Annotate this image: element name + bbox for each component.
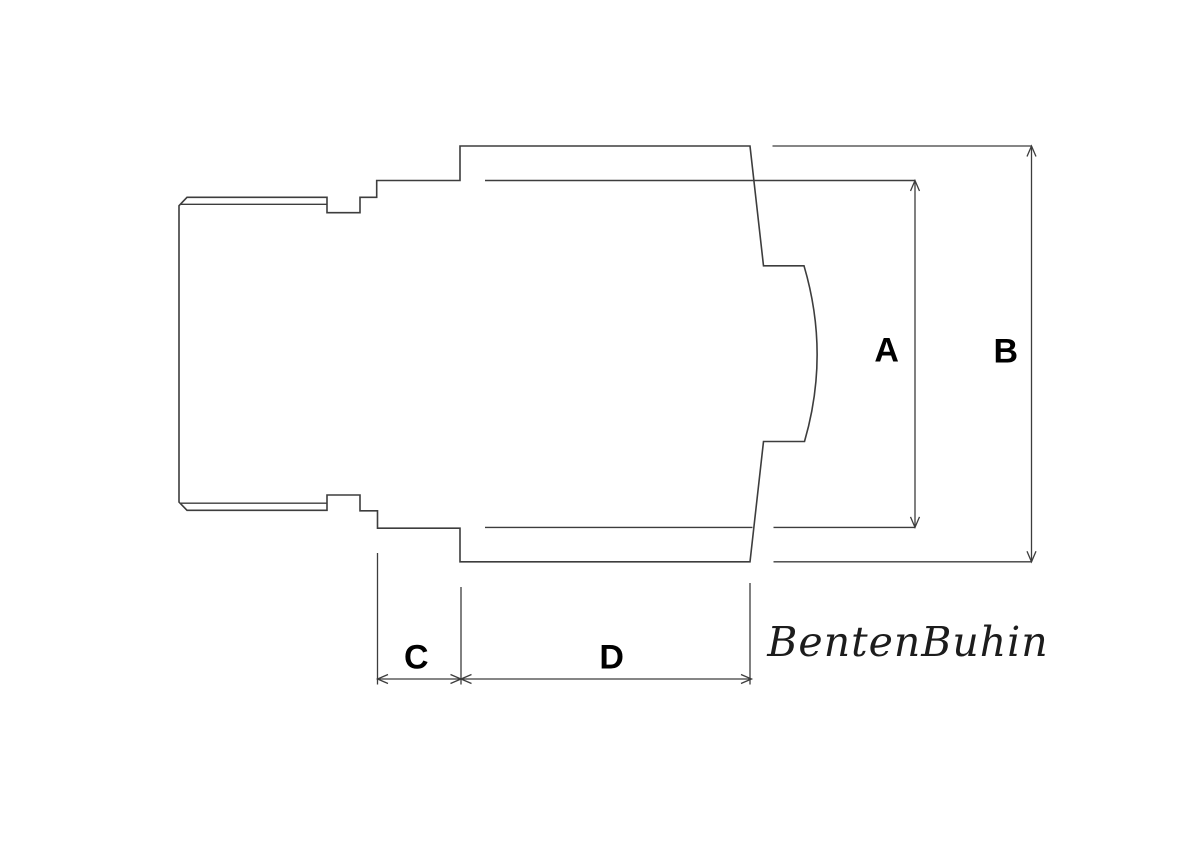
dimensions-cd: C D [378,553,752,685]
dimension-a: A [874,181,919,528]
dimension-d-label: D [599,639,624,677]
dimension-b: B [773,146,1037,562]
dimension-b-label: B [994,333,1019,371]
part-profile-path [179,146,817,562]
drawing-canvas: A B C D BentenBuhin [0,0,1200,848]
part-inner-edges [485,181,915,528]
technical-drawing: A B C D BentenBuhin [0,0,1200,848]
logo-text: BentenBuhin [766,618,1048,666]
dimension-c-label: C [404,639,429,677]
dimension-a-label: A [874,332,899,370]
part-outline [179,146,817,562]
